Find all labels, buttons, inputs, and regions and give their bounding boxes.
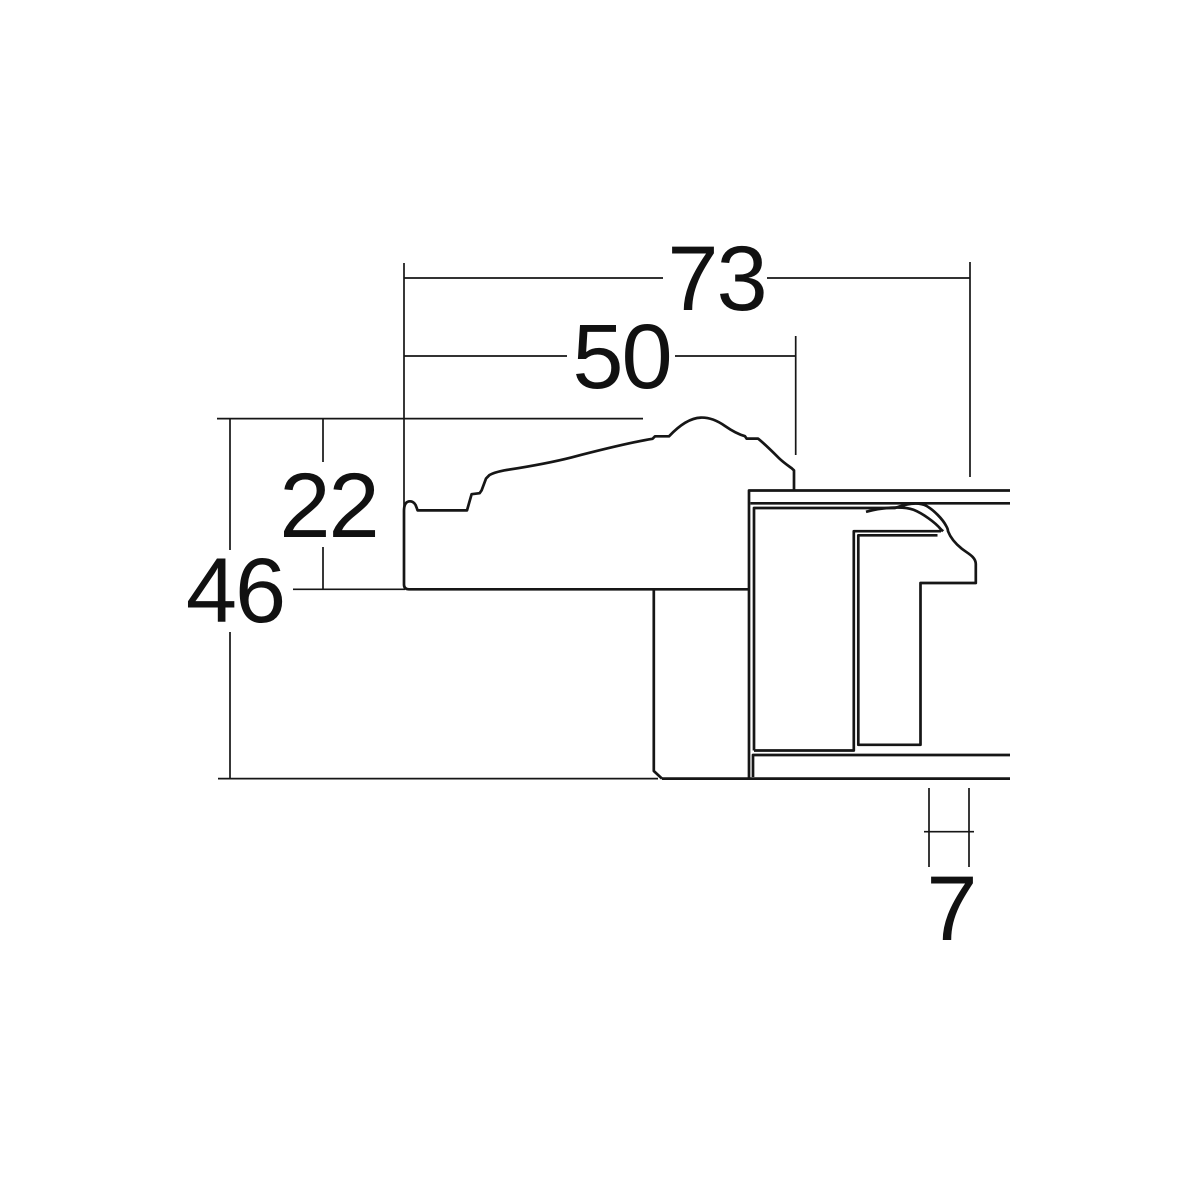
- dimension-label-total-width: 73: [667, 228, 765, 330]
- board-bottom-liner-outline: [754, 531, 941, 750]
- dimension-label-total-height: 46: [186, 540, 284, 642]
- dimension-label-face-height: 22: [279, 455, 377, 557]
- drawing-canvas: 73 50 22 46 7: [0, 0, 1200, 1200]
- inner-board-hook-nose: [754, 504, 976, 751]
- moulding-foot: [654, 589, 662, 778]
- dimension-label-face-width: 50: [572, 306, 670, 408]
- object-outlines: [404, 418, 1010, 779]
- moulding-profile-outline: [404, 418, 794, 511]
- channel-bottom-inner-line: [753, 755, 1010, 777]
- frame-cross-section-drawing: 73 50 22 46 7: [0, 0, 1200, 1200]
- moulding-left-edge-baseline: [404, 511, 749, 589]
- dimension-label-lip-depth: 7: [926, 858, 975, 960]
- channel-outline: [662, 491, 1010, 779]
